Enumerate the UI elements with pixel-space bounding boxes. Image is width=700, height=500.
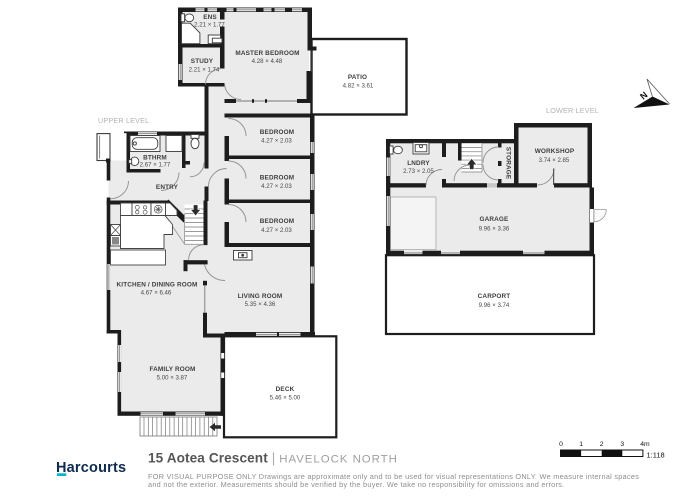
svg-text:4.67 × 6.46: 4.67 × 6.46: [141, 290, 172, 297]
svg-text:LOWER LEVEL: LOWER LEVEL: [546, 106, 599, 115]
svg-text:ENTRY: ENTRY: [156, 184, 179, 191]
svg-text:and not the exterior. Measurem: and not the exterior. Measurements shoul…: [148, 480, 564, 489]
svg-text:5.35 × 4.36: 5.35 × 4.36: [245, 301, 276, 308]
svg-text:2.73 × 2.05: 2.73 × 2.05: [403, 168, 434, 175]
svg-text:2: 2: [600, 441, 604, 448]
svg-text:9.96 × 3.74: 9.96 × 3.74: [479, 302, 510, 309]
svg-text:LNDRY: LNDRY: [407, 160, 430, 167]
svg-text:DECK: DECK: [276, 386, 295, 393]
svg-text:KITCHEN / DINING ROOM: KITCHEN / DINING ROOM: [117, 282, 198, 289]
svg-text:4m: 4m: [640, 441, 650, 448]
svg-text:1: 1: [579, 441, 583, 448]
svg-text:15 Aotea Crescent | HAVELOCK N: 15 Aotea Crescent | HAVELOCK NORTH: [148, 451, 398, 466]
svg-text:LIVING ROOM: LIVING ROOM: [238, 293, 283, 300]
svg-text:3: 3: [620, 441, 624, 448]
svg-text:ENS: ENS: [203, 14, 217, 21]
svg-text:STORAGE: STORAGE: [505, 147, 512, 180]
svg-text:5.46 × 5.00: 5.46 × 5.00: [270, 395, 301, 402]
svg-text:4.27 × 2.03: 4.27 × 2.03: [261, 227, 292, 234]
svg-text:BEDROOM: BEDROOM: [260, 218, 294, 225]
svg-text:Harcourts: Harcourts: [56, 460, 126, 476]
svg-text:9.96 × 3.36: 9.96 × 3.36: [479, 226, 510, 233]
svg-text:BEDROOM: BEDROOM: [260, 129, 294, 136]
svg-text:MASTER BEDROOM: MASTER BEDROOM: [235, 50, 299, 57]
svg-text:PATIO: PATIO: [348, 74, 367, 81]
svg-text:4.27 × 2.03: 4.27 × 2.03: [261, 183, 292, 190]
svg-text:BTHRM: BTHRM: [143, 155, 167, 162]
svg-text:UPPER LEVEL: UPPER LEVEL: [98, 116, 149, 125]
svg-text:STUDY: STUDY: [191, 58, 214, 65]
svg-text:4.27 × 2.03: 4.27 × 2.03: [261, 138, 292, 145]
svg-text:1:118: 1:118: [647, 451, 665, 460]
svg-text:3.74 × 2.85: 3.74 × 2.85: [539, 157, 570, 164]
svg-text:GARAGE: GARAGE: [480, 216, 510, 223]
svg-text:BEDROOM: BEDROOM: [260, 175, 294, 182]
svg-text:CARPORT: CARPORT: [478, 293, 511, 300]
svg-text:WORKSHOP: WORKSHOP: [535, 148, 575, 155]
svg-text:4.28 × 4.48: 4.28 × 4.48: [252, 58, 283, 65]
svg-text:5.00 × 3.87: 5.00 × 3.87: [157, 375, 188, 382]
svg-text:0: 0: [559, 441, 563, 448]
svg-text:FAMILY ROOM: FAMILY ROOM: [149, 366, 195, 373]
svg-text:4.82 × 3.61: 4.82 × 3.61: [343, 83, 374, 90]
svg-text:2.21 × 1.74: 2.21 × 1.74: [189, 67, 220, 74]
svg-text:2.67 × 1.77: 2.67 × 1.77: [140, 162, 171, 169]
svg-text:2.21 × 1.77: 2.21 × 1.77: [194, 22, 225, 29]
